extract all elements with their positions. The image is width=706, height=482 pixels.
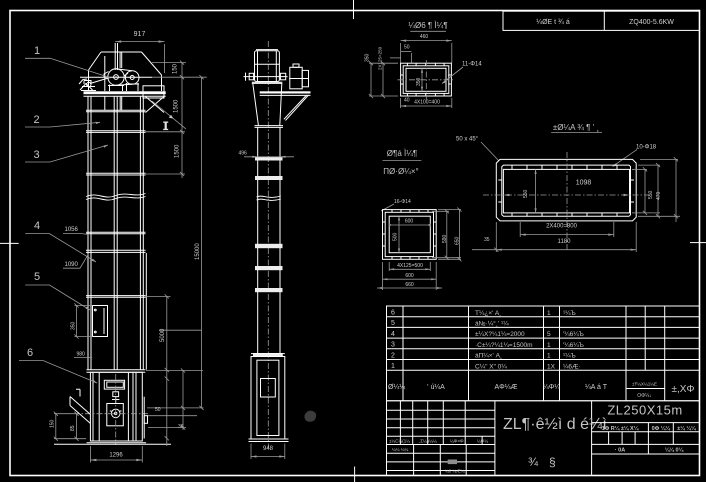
svg-text:C¼" X" 0¼: C¼" X" 0¼ (475, 363, 507, 370)
svg-text:1: 1 (547, 353, 551, 360)
svg-text:350: 350 (365, 53, 371, 62)
svg-text:460: 460 (420, 34, 429, 40)
svg-text:50: 50 (404, 45, 410, 51)
svg-text:1098: 1098 (576, 180, 592, 187)
svg-text:150: 150 (50, 419, 56, 428)
svg-text:á№·¼°¸' ¹¼: á№·¼°¸' ¹¼ (475, 320, 509, 328)
svg-text:50: 50 (155, 407, 161, 413)
svg-text:±,XΦ: ±,XΦ (672, 384, 695, 395)
svg-text:2X400=800: 2X400=800 (546, 224, 578, 230)
svg-text:·C±¼?¼1¼=1500m: ·C±¼?¼1¼=1500m (475, 342, 533, 349)
svg-text:'¼6¼Ъ: '¼6¼Ъ (563, 331, 584, 338)
svg-text:980: 980 (77, 352, 86, 358)
svg-text:§: § (549, 455, 556, 469)
svg-text:4: 4 (34, 220, 40, 232)
svg-text:1: 1 (547, 342, 551, 349)
svg-text:4X100=400: 4X100=400 (414, 100, 440, 106)
svg-text:470: 470 (656, 191, 662, 200)
svg-text:11-Φ14: 11-Φ14 (462, 62, 482, 68)
svg-text:1Φ R¼ ±¼ X¼: 1Φ R¼ ±¼ X¼ (602, 425, 639, 432)
svg-text:¼ØE t ¾ á: ¼ØE t ¾ á (536, 19, 570, 26)
svg-text:±¼X?¼1¼=2000: ±¼X?¼1¼=2000 (475, 331, 525, 338)
svg-text:AΦ¼Æ: AΦ¼Æ (494, 384, 517, 391)
svg-text:1: 1 (34, 45, 40, 57)
svg-text:350: 350 (416, 77, 422, 86)
svg-text:660: 660 (405, 282, 414, 288)
svg-text:6: 6 (27, 347, 33, 359)
svg-text:áΠ¼×' A¸: áΠ¼×' A¸ (475, 353, 502, 360)
svg-text:¹¼Ъ: ¹¼Ъ (563, 353, 576, 360)
svg-text:3: 3 (391, 342, 395, 349)
svg-text:ZQ400-5.6KW: ZQ400-5.6KW (629, 19, 674, 26)
svg-text:¼¼ ¼¼: ¼¼ ¼¼ (392, 447, 409, 452)
svg-text:35: 35 (484, 237, 490, 243)
svg-text:350: 350 (71, 321, 77, 330)
svg-text:2X125=250: 2X125=250 (378, 46, 383, 70)
svg-text:150: 150 (173, 63, 179, 74)
svg-text:¼0 ¼Æ¼: ¼0 ¼Æ¼ (445, 468, 465, 473)
svg-text:'¼6¼Ъ: '¼6¼Ъ (563, 342, 584, 349)
svg-text:5000: 5000 (160, 328, 166, 342)
svg-text:±Ŧ¼X¼1¼E: ±Ŧ¼X¼1¼E (632, 382, 657, 387)
svg-text:1X: 1X (547, 363, 556, 370)
svg-text:85: 85 (70, 425, 76, 431)
svg-text:¼Ø6 ¶ Ì¼¶: ¼Ø6 ¶ Ì¼¶ (408, 21, 447, 30)
svg-text:1500: 1500 (175, 144, 181, 158)
svg-text:0Φ ¼¼: 0Φ ¼¼ (652, 425, 671, 432)
svg-text:1090: 1090 (65, 262, 79, 268)
svg-text:36: 36 (178, 424, 184, 430)
svg-text:ΠØ·Ø¼×°: ΠØ·Ø¼×° (383, 167, 418, 176)
svg-text:1296: 1296 (109, 453, 123, 459)
svg-text:Ø¼¼: Ø¼¼ (388, 384, 405, 391)
svg-text:¼Φ×Φ: ¼Φ×Φ (450, 439, 464, 444)
svg-text:2: 2 (391, 352, 395, 359)
svg-text:T¼¿×' A¸: T¼¿×' A¸ (475, 310, 501, 317)
svg-text:' ú¼A: ' ú¼A (427, 384, 445, 391)
svg-text:50 x 45°: 50 x 45° (456, 137, 479, 143)
svg-text:¼6Æ·: ¼6Æ· (563, 363, 581, 370)
svg-text:5: 5 (547, 331, 551, 338)
svg-text:600: 600 (405, 273, 414, 279)
svg-text:1180: 1180 (558, 239, 572, 245)
svg-text:¼A á T: ¼A á T (585, 384, 608, 391)
svg-text:3: 3 (34, 149, 40, 161)
svg-text:±Ø¼A ¾ ¶ ' ¸: ±Ø¼A ¾ ¶ ' ¸ (553, 123, 599, 132)
svg-text:Ø¶á Ì¼¶: Ø¶á Ì¼¶ (387, 149, 417, 158)
svg-text:550: 550 (648, 190, 654, 199)
svg-text:¹¼Ъ: ¹¼Ъ (563, 310, 576, 317)
svg-text:¼Φ¼: ¼Φ¼ (477, 439, 488, 444)
svg-text:5: 5 (34, 271, 40, 283)
svg-text:1056: 1056 (65, 227, 79, 233)
svg-text:2: 2 (34, 114, 40, 126)
svg-text:1: 1 (391, 363, 395, 370)
svg-text:±¼C¼(1¼: ±¼C¼(1¼ (389, 439, 410, 444)
svg-text:±¼ ¼¼: ±¼ ¼¼ (677, 425, 696, 432)
svg-text:¼Φ¼: ¼Φ¼ (543, 384, 560, 391)
svg-text:ZL250X15m: ZL250X15m (607, 403, 682, 418)
svg-text:ZL¶·ê½ì d é¼ì: ZL¶·ê½ì d é¼ì (503, 416, 607, 433)
svg-text:550: 550 (523, 189, 529, 198)
svg-text:¼¼ 0¼: ¼¼ 0¼ (665, 447, 684, 454)
svg-text:16-Φ14: 16-Φ14 (394, 199, 411, 205)
svg-text:590: 590 (442, 234, 448, 243)
svg-text:650: 650 (455, 236, 461, 245)
svg-text:6: 6 (391, 310, 395, 317)
svg-text:¾: ¾ (528, 455, 539, 469)
svg-text:948: 948 (263, 446, 274, 452)
svg-text:1500: 1500 (174, 99, 180, 113)
svg-text:· 0A: · 0A (615, 448, 625, 454)
svg-text:1: 1 (547, 310, 551, 317)
svg-text:496: 496 (239, 151, 248, 157)
svg-text:10-Φ18: 10-Φ18 (636, 145, 657, 151)
svg-text:OΦ¼↓: OΦ¼↓ (637, 393, 652, 399)
svg-text:4X125=500: 4X125=500 (397, 263, 423, 269)
svg-text:500: 500 (393, 232, 399, 241)
svg-text:600: 600 (405, 219, 414, 225)
svg-text:5: 5 (391, 320, 395, 327)
svg-text:15000: 15000 (195, 243, 201, 260)
svg-text:4: 4 (391, 331, 395, 338)
svg-text:40: 40 (404, 98, 410, 104)
svg-text:,Σ¼a¼¼: ,Σ¼a¼¼ (419, 439, 437, 444)
svg-text:917: 917 (134, 31, 146, 38)
